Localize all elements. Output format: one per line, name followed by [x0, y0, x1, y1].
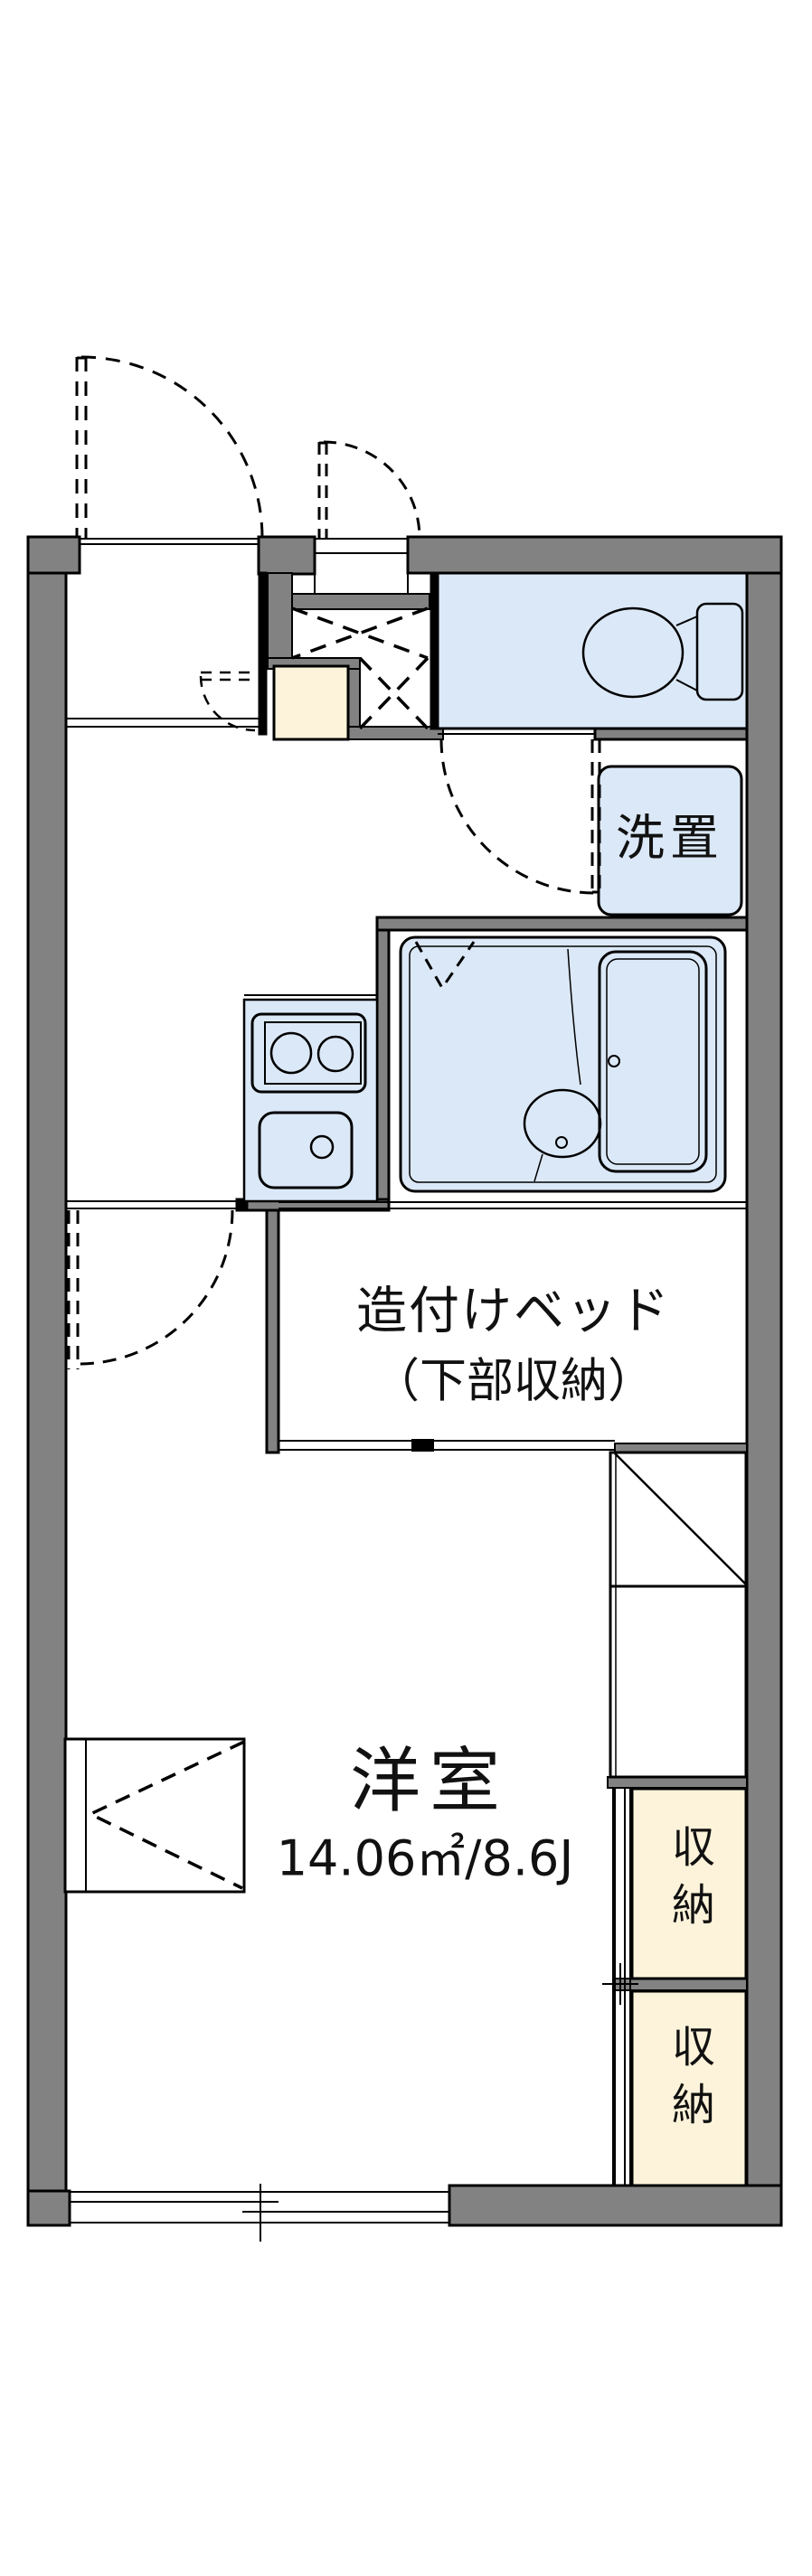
bottom-window — [70, 2184, 449, 2242]
bed-bottom-tick — [411, 1439, 434, 1452]
wall-alcove-right — [348, 669, 360, 729]
folding-table — [65, 1739, 244, 1892]
western-room-area: 14.06㎡/8.6J — [277, 1834, 574, 1885]
top-window-lines — [315, 539, 408, 553]
bed-bottom-lines — [279, 1441, 615, 1450]
genkan-door — [201, 672, 255, 730]
western-room-name: 洋室 — [350, 1745, 509, 1819]
toilet-door — [441, 739, 600, 893]
top-window-recess — [315, 553, 408, 594]
built-in-bed-label-line2: （下部収納） — [373, 1358, 655, 1407]
wall-kitchen-right — [377, 930, 389, 1203]
side-column-upper-box — [610, 1453, 746, 1586]
built-in-bed-label-line1: 造付けベッド — [356, 1286, 671, 1340]
wall-alcove-under-window — [292, 594, 430, 609]
refrigerator-x-upper — [292, 608, 428, 658]
wall-right — [747, 537, 781, 2225]
genkan-door-arc — [201, 676, 255, 730]
closet-upper-label: 収納 — [667, 1824, 711, 1940]
side-column-lower-box — [610, 1586, 746, 1777]
entrance-sill-lines — [80, 539, 259, 544]
kitchen-counter-edge — [244, 995, 377, 1000]
toilet-bowl — [583, 608, 683, 697]
wall-bottom-right-segment — [449, 2186, 781, 2225]
entrance-door-leaf — [77, 357, 86, 538]
corridor-door — [69, 1210, 232, 1369]
wall-column-bottom — [608, 1777, 747, 1788]
shoe-cabinet — [274, 666, 348, 739]
wall-alcove-left — [268, 573, 292, 669]
entrance-door — [77, 357, 262, 538]
corridor-threshold-lines — [66, 1201, 237, 1208]
refrigerator-x-lower — [360, 658, 428, 729]
genkan-door-leaf — [201, 672, 255, 680]
wall-alcove-bottom — [348, 727, 443, 739]
closet-front-line — [612, 1789, 616, 2186]
wall-genkan-partition — [260, 573, 266, 734]
wall-top-left-segment — [28, 537, 80, 573]
top-window-casement — [319, 442, 420, 538]
top-window-leaf — [319, 442, 326, 538]
wall-top-right-segment — [408, 537, 781, 573]
laundry-space-label: 洗置 — [616, 813, 724, 865]
wall-top-center-pillar — [259, 537, 315, 574]
entrance-door-arc — [81, 357, 262, 538]
corridor-door-leaf — [69, 1210, 78, 1369]
wall-washroom-bath — [377, 917, 747, 930]
closet-lower-label: 収納 — [667, 2024, 711, 2139]
floor-plan-page: 洗置 造付けベッド （下部収納） 洋室 14.06㎡/8.6J 収納 収納 — [0, 0, 812, 2576]
toilet-threshold-lines — [438, 729, 595, 734]
wall-bed-left — [267, 1210, 279, 1453]
corridor-door-arc — [79, 1210, 232, 1364]
top-window-arc — [324, 442, 420, 538]
wall-bottom-left-corner — [28, 2191, 70, 2225]
wall-left — [28, 537, 66, 2225]
toilet-door-arc — [441, 739, 595, 893]
toilet-tank — [697, 604, 742, 700]
